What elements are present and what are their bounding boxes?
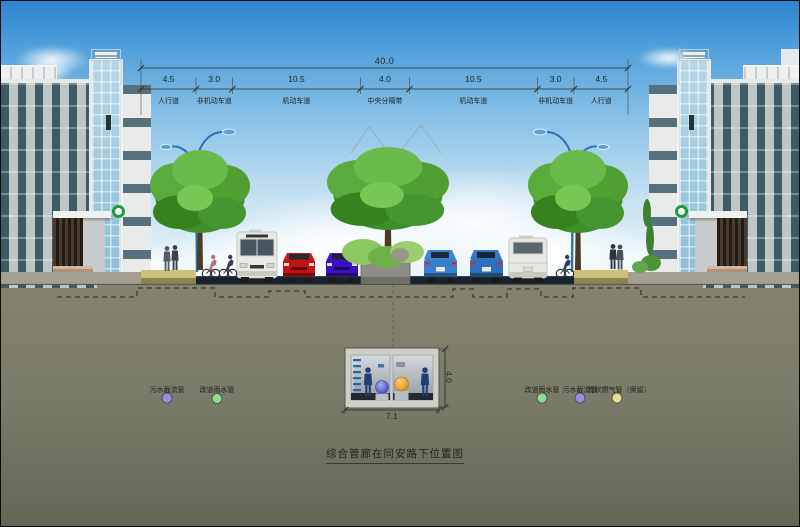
dim-value: 10.5 <box>409 74 537 84</box>
dim-value: 4.5 <box>574 74 629 84</box>
lane-label-median: 中央分隔带 <box>360 96 409 106</box>
legend-swatch-rainwater <box>212 394 222 404</box>
dim-value: 4.0 <box>360 74 409 84</box>
sewage-pipe-sphere-icon <box>376 381 389 394</box>
bus-front-icon <box>237 230 277 283</box>
legend-label-sewage: 污水截流管 <box>150 385 185 395</box>
lane-label-sidewalk: 人行道 <box>574 96 629 106</box>
rainwater-pipe-sphere-icon <box>395 377 409 391</box>
pedestrian-icon <box>609 244 616 269</box>
pedestrian-icon <box>616 245 623 270</box>
lane-label-sidewalk: 人行道 <box>141 96 196 106</box>
wall-box <box>396 362 405 367</box>
dim-value: 4.5 <box>141 74 196 84</box>
dim-value: 3.0 <box>537 74 573 84</box>
drawing-title: 综合管廊在同安路下位置图 <box>326 446 464 464</box>
legend-label-rainwater: 改道雨水管 <box>525 385 560 395</box>
shrub-icon <box>632 199 661 273</box>
lane-label-motor: 机动车道 <box>409 96 537 106</box>
lane-label-bike: 非机动车道 <box>196 96 232 106</box>
segment-width-dimensions: 4.5 3.0 10.5 4.0 10.5 3.0 4.5 <box>141 74 628 84</box>
lane-labels: 人行道 非机动车道 机动车道 中央分隔带 机动车道 非机动车道 人行道 <box>141 96 628 106</box>
lane-label-motor: 机动车道 <box>232 96 360 106</box>
wall-sign <box>378 364 384 368</box>
pedestrian-icon <box>171 245 178 270</box>
cyclist-icon <box>219 255 236 278</box>
existing-utility-dashed-line <box>57 288 745 297</box>
road-surface <box>1 262 800 285</box>
legend-label-rainwater: 改道雨水管 <box>200 385 235 395</box>
utility-tunnel-box <box>345 348 439 408</box>
tunnel-height-dimension: 4.0 <box>444 367 454 387</box>
lane-label-bike: 非机动车道 <box>537 96 573 106</box>
dim-value: 10.5 <box>232 74 360 84</box>
legend-label-gas: 现状燃气管（保留） <box>588 385 651 395</box>
dim-value: 3.0 <box>196 74 232 84</box>
median-planting <box>327 125 449 268</box>
cyclist-icon <box>202 255 219 278</box>
bus-rear-icon <box>509 236 547 284</box>
tunnel-width-dimension: 7.1 <box>345 411 439 421</box>
pedestrian-icon <box>163 246 170 271</box>
total-width-dimension: 40.0 <box>141 56 628 66</box>
road-cross-section-drawing: 40.0 4.5 3.0 10.5 4.0 10.5 3.0 4.5 人行道 非… <box>0 0 800 527</box>
